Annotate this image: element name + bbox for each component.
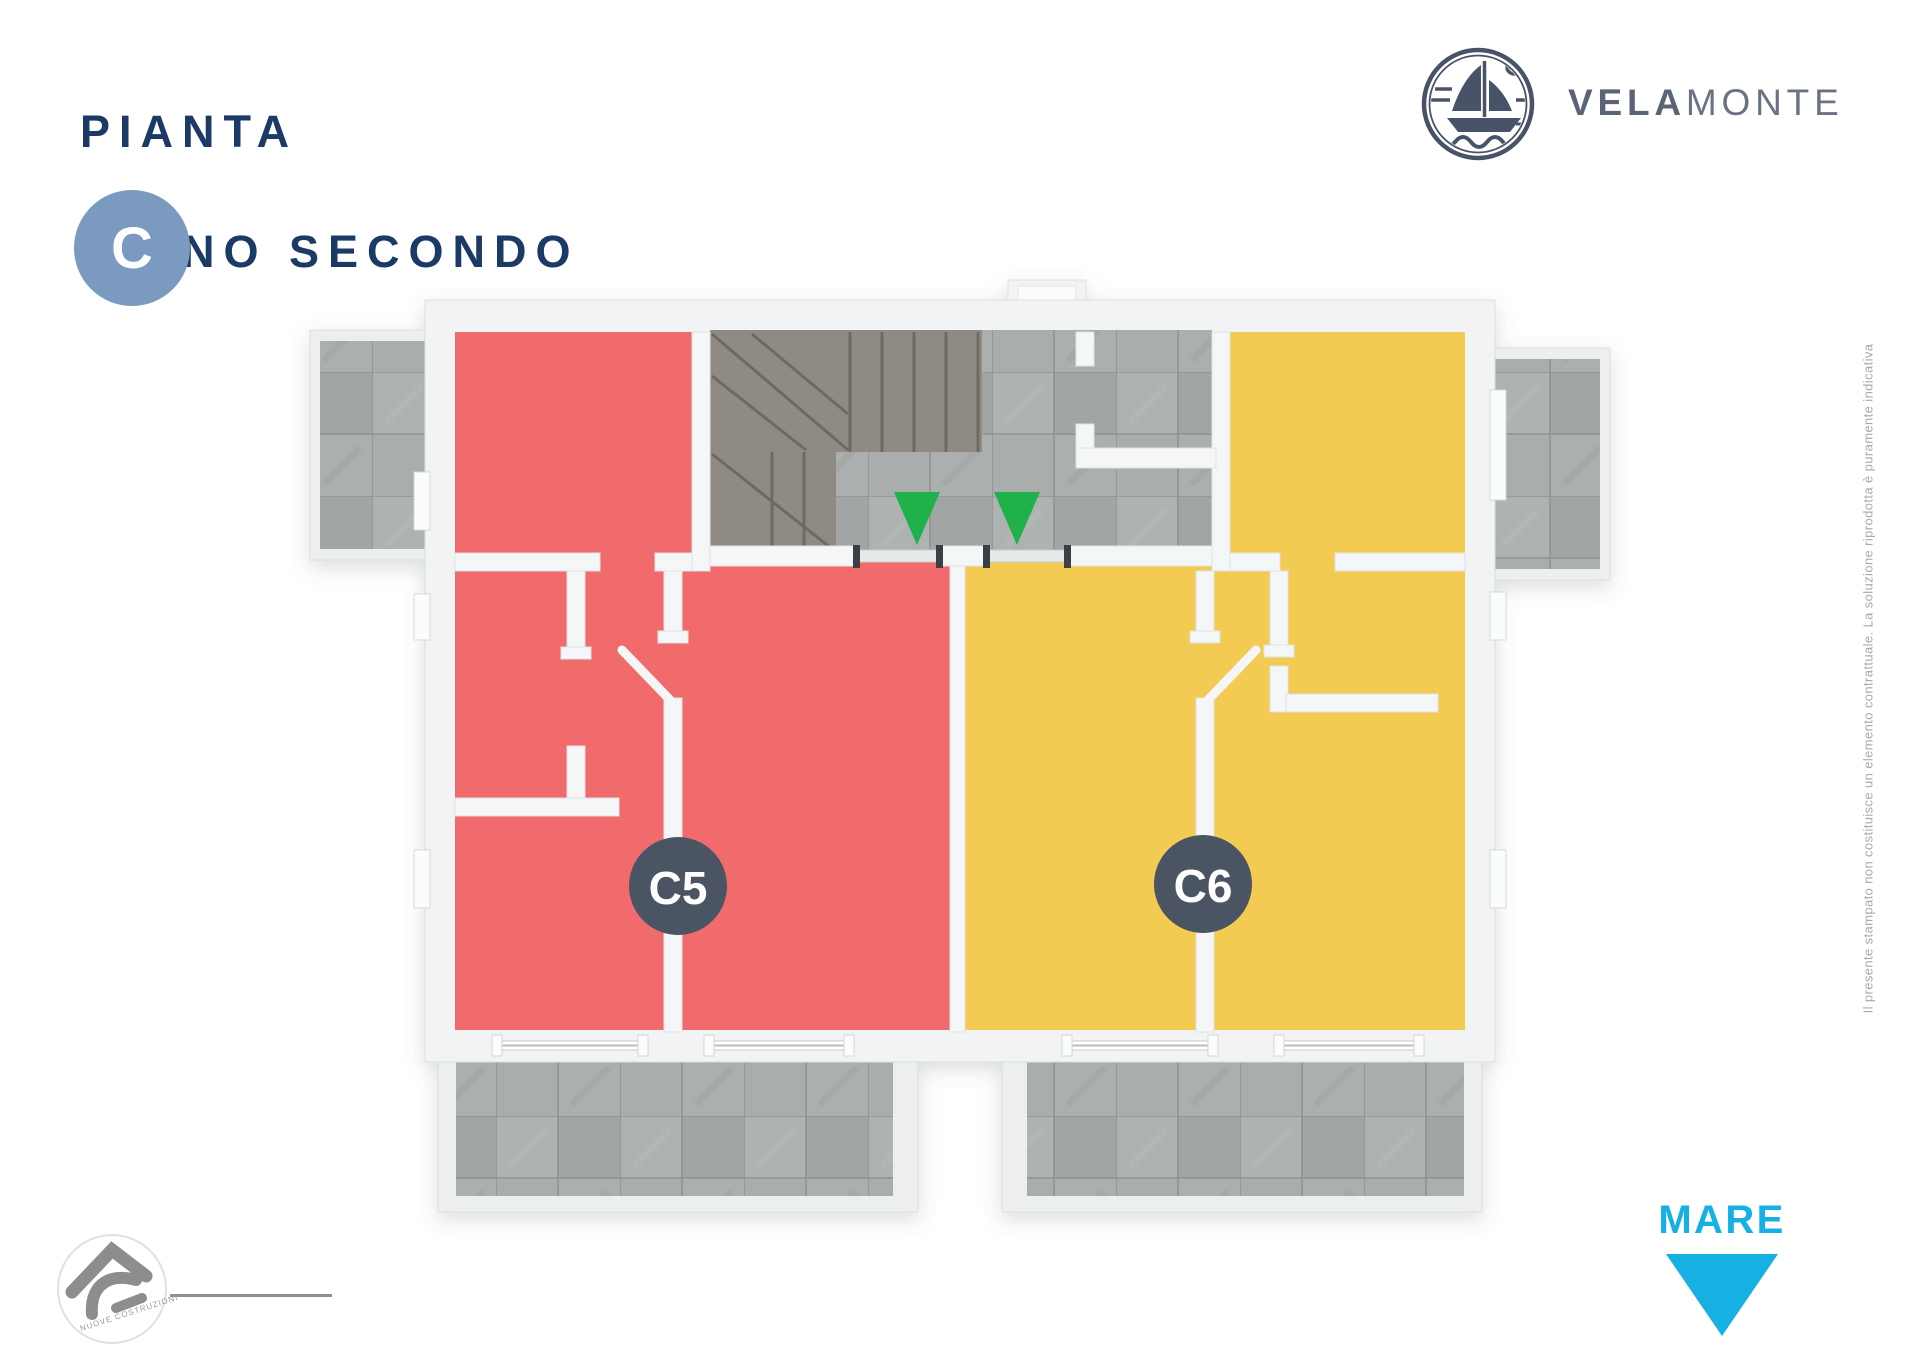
unit-badge-c5: C5: [629, 837, 727, 935]
entrance-doors: [710, 545, 1212, 568]
unit-badge-c6: C6: [1154, 835, 1252, 933]
terrace-c5: [438, 1040, 918, 1212]
builder-logo-icon: NUOVE COSTRUZIONI: [40, 1218, 340, 1358]
sea-arrow-icon: [1652, 1250, 1792, 1342]
sea-direction-label: MARE: [1652, 1198, 1792, 1243]
builder-divider-line: [170, 1294, 332, 1297]
balcony-right: [1495, 348, 1610, 580]
legal-disclaimer: Il presente stampato non costituisce un …: [1861, 329, 1876, 1029]
unit-badge-c5-label: C5: [649, 862, 708, 914]
terrace-c6: [1002, 1040, 1482, 1212]
unit-badge-c6-label: C6: [1174, 860, 1233, 912]
floor-plan: C5 C6: [0, 0, 1920, 1358]
stairwell-landing: [710, 330, 1212, 554]
balcony-left: [310, 330, 425, 560]
